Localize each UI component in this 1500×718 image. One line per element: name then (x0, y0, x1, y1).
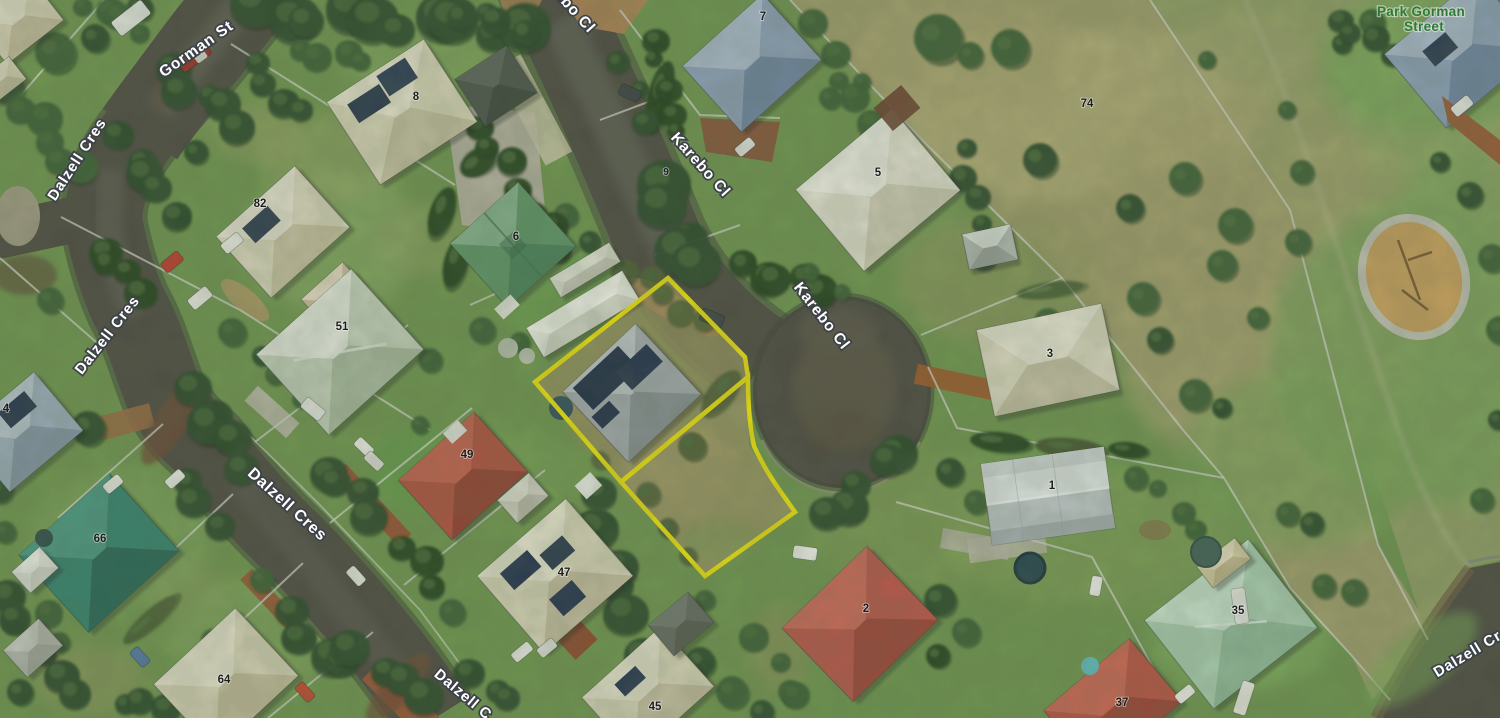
svg-text:9: 9 (663, 166, 669, 178)
svg-text:47: 47 (558, 567, 571, 579)
svg-text:Park Gorman: Park Gorman (1377, 4, 1465, 19)
svg-text:64: 64 (218, 674, 231, 686)
svg-text:51: 51 (336, 321, 349, 333)
svg-text:37: 37 (1116, 697, 1129, 709)
svg-text:4: 4 (3, 403, 10, 415)
svg-text:7: 7 (760, 11, 766, 23)
svg-text:66: 66 (94, 533, 107, 545)
svg-text:35: 35 (1232, 605, 1245, 617)
svg-text:1: 1 (1049, 480, 1056, 492)
svg-text:8: 8 (413, 91, 420, 103)
svg-text:3: 3 (1047, 348, 1053, 360)
svg-text:2: 2 (863, 603, 869, 615)
svg-text:82: 82 (254, 198, 267, 210)
svg-text:45: 45 (649, 701, 662, 713)
svg-text:6: 6 (513, 231, 519, 243)
svg-text:Street: Street (1404, 19, 1444, 34)
svg-text:5: 5 (875, 167, 882, 179)
svg-text:74: 74 (1081, 98, 1094, 110)
svg-text:49: 49 (461, 449, 474, 461)
